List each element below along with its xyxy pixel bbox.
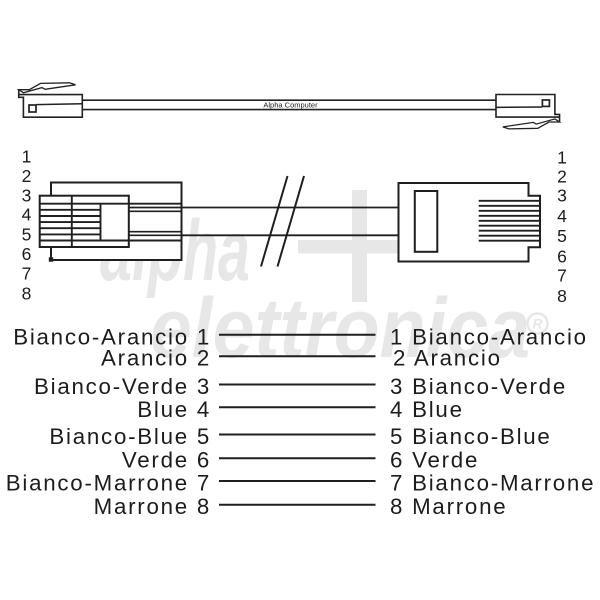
svg-text:4: 4 (22, 205, 32, 225)
svg-text:3: 3 (557, 186, 567, 206)
svg-text:5: 5 (22, 225, 32, 245)
svg-text:4 Blue: 4 Blue (390, 397, 464, 422)
svg-text:8 Marrone: 8 Marrone (390, 494, 507, 519)
svg-text:8: 8 (557, 286, 567, 306)
svg-text:7: 7 (22, 263, 32, 283)
svg-text:3: 3 (22, 186, 32, 206)
svg-text:7 Bianco-Marrone: 7 Bianco-Marrone (390, 471, 595, 496)
svg-text:1: 1 (557, 147, 567, 167)
svg-text:Marrone 8: Marrone 8 (94, 494, 211, 519)
svg-text:2 Arancio: 2 Arancio (393, 346, 502, 371)
svg-text:6 Verde: 6 Verde (390, 448, 479, 473)
svg-text:3 Bianco-Verde: 3 Bianco-Verde (390, 374, 567, 399)
svg-text:Verde 6: Verde 6 (122, 448, 211, 473)
svg-text:Bianco-Marrone 7: Bianco-Marrone 7 (6, 471, 211, 496)
svg-text:Bianco-Verde 3: Bianco-Verde 3 (34, 374, 211, 399)
svg-text:Blue 4: Blue 4 (137, 397, 211, 422)
svg-text:8: 8 (22, 283, 32, 303)
svg-text:2: 2 (22, 166, 32, 186)
svg-text:7: 7 (557, 266, 567, 286)
svg-text:Bianco-Blue 5: Bianco-Blue 5 (49, 424, 211, 449)
svg-text:1: 1 (22, 147, 32, 167)
svg-text:6: 6 (22, 244, 32, 264)
svg-text:5: 5 (557, 226, 567, 246)
svg-text:2: 2 (557, 166, 567, 186)
svg-text:Arancio 2: Arancio 2 (101, 346, 211, 371)
svg-text:5 Bianco-Blue: 5 Bianco-Blue (390, 424, 552, 449)
svg-text:6: 6 (557, 247, 567, 267)
svg-text:4: 4 (557, 206, 567, 226)
svg-text:Alpha Computer: Alpha Computer (263, 100, 318, 109)
